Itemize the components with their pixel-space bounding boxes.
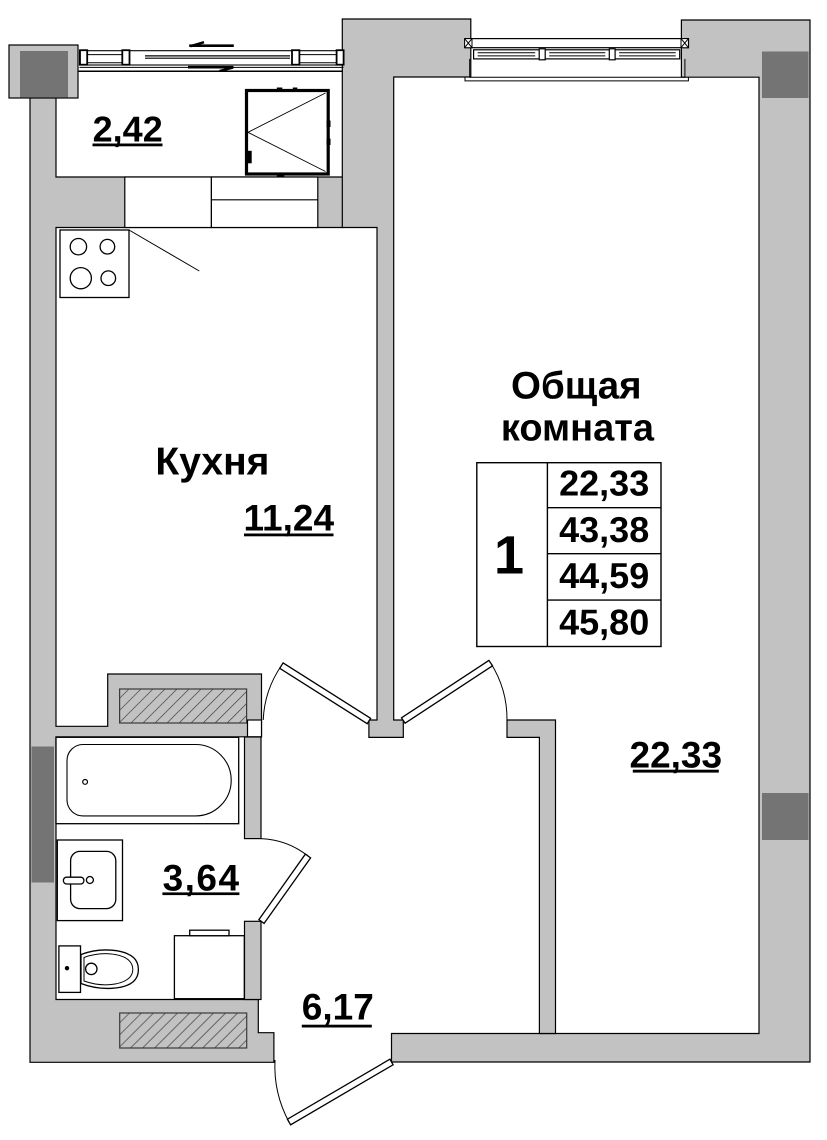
svg-text:1: 1 — [494, 526, 524, 586]
svg-text:43,38: 43,38 — [559, 509, 649, 550]
svg-text:45,80: 45,80 — [559, 602, 649, 643]
svg-text:3,64: 3,64 — [163, 858, 241, 899]
svg-text:22,33: 22,33 — [559, 463, 649, 504]
svg-text:Кухня: Кухня — [155, 440, 269, 483]
svg-text:2,42: 2,42 — [93, 109, 163, 150]
svg-text:комната: комната — [501, 408, 655, 450]
svg-text:44,59: 44,59 — [559, 555, 649, 596]
svg-text:6,17: 6,17 — [302, 987, 374, 1028]
svg-text:22,33: 22,33 — [630, 735, 723, 776]
svg-text:Общая: Общая — [511, 365, 642, 408]
svg-text:11,24: 11,24 — [244, 498, 335, 539]
